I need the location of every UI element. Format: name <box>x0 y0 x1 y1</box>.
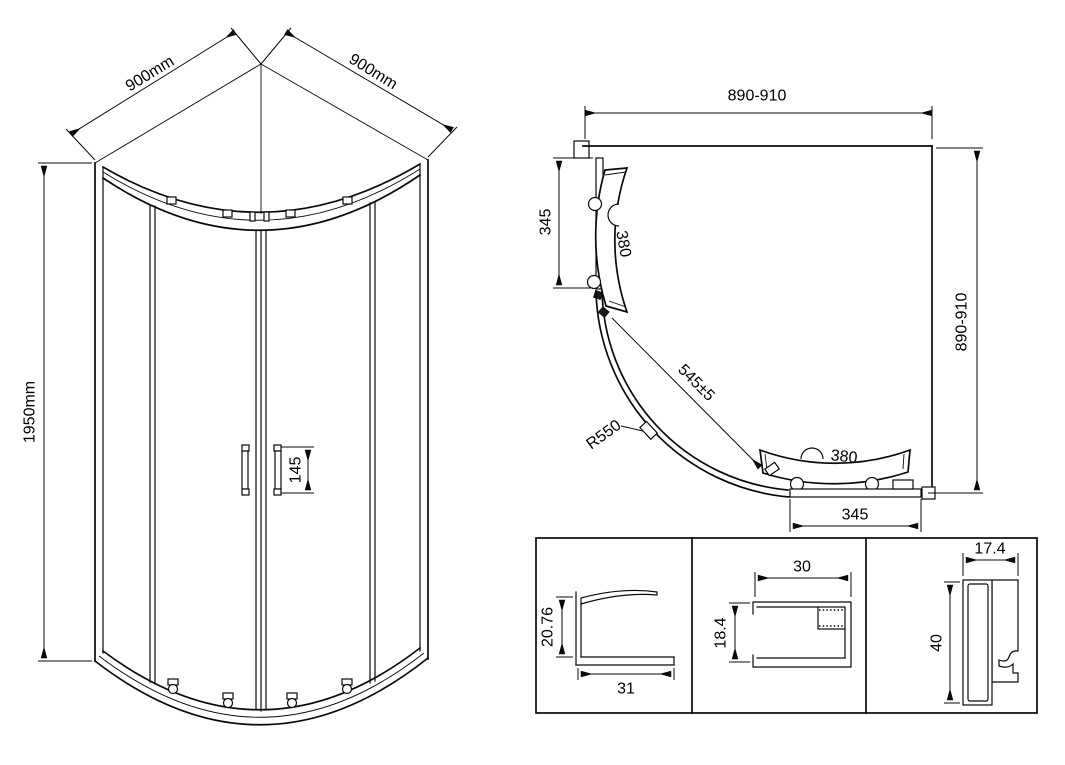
dim-handle-length: 145 <box>281 447 314 493</box>
wheel <box>224 699 233 708</box>
top-roller-clip <box>343 197 352 204</box>
dimension-line <box>612 318 760 467</box>
quadrant-arc-outer <box>596 291 789 497</box>
front-elevation-view: 900mm 900mm 1950mm 145 <box>22 28 458 725</box>
panel-bracket <box>893 480 913 489</box>
dim-left-fixed-panel: 345 <box>538 158 594 288</box>
door-handle-right <box>274 445 281 495</box>
dim-plan-side-depth: 890-910 <box>928 148 983 493</box>
extension-line <box>261 28 291 64</box>
dim-label-2076: 20.76 <box>540 607 557 647</box>
profile-outline <box>753 602 851 667</box>
extension-line <box>428 127 457 157</box>
dim-label-890-910-top: 890-910 <box>728 88 787 105</box>
handle-bar <box>275 451 281 489</box>
roller <box>588 276 601 289</box>
profile-detail-3: 17.4 40 <box>929 541 1019 706</box>
dim-label-r550: R550 <box>584 417 625 453</box>
handle-bar <box>242 451 248 489</box>
dim-front-height: 1950mm <box>22 163 93 661</box>
leader-line <box>621 426 643 431</box>
dim-label-545: 545±5 <box>674 361 717 404</box>
roller <box>589 198 602 211</box>
profile-right-panel <box>992 580 1018 682</box>
handle-cap <box>242 489 249 495</box>
wheel <box>169 685 178 694</box>
detail-cells-border <box>536 538 1037 713</box>
dim-label-145: 145 <box>288 457 305 484</box>
profile-detail-2: 30 18.4 <box>713 559 852 668</box>
dim-label-40: 40 <box>929 634 946 652</box>
dim-label-345-left: 345 <box>538 209 555 236</box>
bottom-roller-wheels <box>168 679 352 708</box>
door-handle-left <box>242 445 249 495</box>
dim-label-30: 30 <box>793 559 811 576</box>
dim-radius: R550 <box>584 417 643 453</box>
dim-front-width-left: 900mm <box>66 28 261 160</box>
dim-label-31: 31 <box>617 681 635 698</box>
wall-profile-top-left <box>574 141 589 158</box>
top-roller-clip <box>167 197 176 204</box>
bottom-fixed-panel <box>790 489 921 497</box>
handle-cap <box>242 445 249 451</box>
top-roller-clip <box>286 210 295 217</box>
dim-label-174: 17.4 <box>974 541 1005 558</box>
profile-blade <box>581 590 657 604</box>
drawing-svg: 900mm 900mm 1950mm 145 <box>0 0 1065 765</box>
dim-label-890-910-side: 890-910 <box>954 293 971 352</box>
center-door-guide <box>264 212 269 221</box>
profile-details: 20.76 31 30 18.4 <box>536 538 1037 713</box>
dim-front-width-right: 900mm <box>261 28 457 157</box>
dimension-line <box>71 32 235 134</box>
wheel <box>288 699 297 708</box>
dim-label-380-bottom: 380 <box>830 447 858 467</box>
dimension-line <box>286 32 452 130</box>
plan-view: 890-910 890-910 345 345 545±5 R550 <box>538 88 984 533</box>
top-roller-clip <box>223 210 232 217</box>
extension-line <box>66 129 95 160</box>
dim-plan-top-width: 890-910 <box>585 88 932 140</box>
profile-detail-1: 20.76 31 <box>540 590 675 697</box>
door-knob-bottom <box>801 448 823 459</box>
center-door-guide <box>250 212 255 221</box>
dim-label-184: 18.4 <box>713 617 730 648</box>
door-end-bracket <box>598 306 610 318</box>
dim-door-diagonal: 545±5 <box>612 318 760 467</box>
handle-cap <box>274 445 281 451</box>
dim-label-345-bottom: 345 <box>842 507 869 524</box>
dim-bottom-fixed-panel: 345 <box>790 499 921 532</box>
handle-cap <box>274 489 281 495</box>
dim-label-1950mm: 1950mm <box>22 381 39 443</box>
wheel <box>343 685 352 694</box>
extension-line <box>231 28 261 64</box>
dim-label-900mm-left: 900mm <box>123 53 177 95</box>
technical-drawing-sheet: 900mm 900mm 1950mm 145 <box>0 0 1065 765</box>
